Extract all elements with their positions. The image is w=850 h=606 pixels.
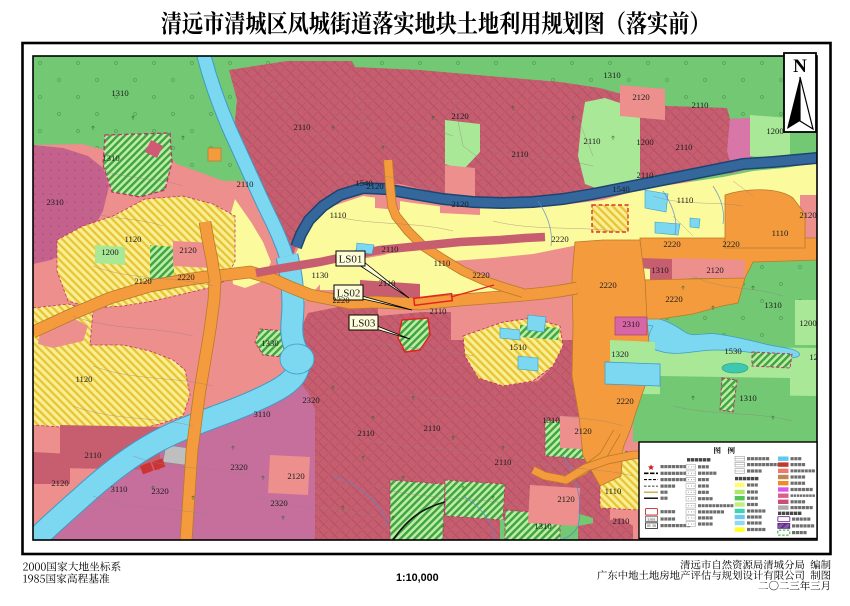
svg-text:2120: 2120	[134, 276, 152, 286]
svg-text:2120: 2120	[451, 199, 469, 209]
svg-text:2110: 2110	[583, 136, 601, 146]
svg-text:2110: 2110	[293, 122, 311, 132]
svg-text:1120: 1120	[124, 234, 142, 244]
svg-text:1530: 1530	[724, 346, 742, 356]
svg-text:2320: 2320	[270, 498, 288, 508]
svg-text:1510: 1510	[509, 342, 527, 352]
svg-text:2110: 2110	[511, 149, 529, 159]
svg-text:2220: 2220	[663, 239, 681, 249]
svg-text:2110: 2110	[357, 428, 375, 438]
svg-text:2120: 2120	[451, 111, 469, 121]
svg-text:2110: 2110	[378, 278, 396, 288]
svg-text:1200: 1200	[809, 352, 827, 362]
svg-text:2310: 2310	[622, 319, 640, 329]
svg-text:2110: 2110	[675, 142, 693, 152]
svg-text:2120: 2120	[287, 471, 305, 481]
svg-text:1120: 1120	[75, 374, 93, 384]
svg-text:2110: 2110	[494, 457, 512, 467]
svg-text:2120: 2120	[706, 265, 724, 275]
svg-text:2110: 2110	[236, 179, 254, 189]
svg-text:1310: 1310	[603, 70, 621, 80]
svg-text:1110: 1110	[772, 228, 789, 238]
svg-text:1110: 1110	[330, 210, 347, 220]
svg-text:1310: 1310	[542, 415, 560, 425]
svg-text:1310: 1310	[534, 521, 552, 531]
svg-text:2120: 2120	[366, 181, 384, 191]
svg-text:2220: 2220	[551, 234, 569, 244]
svg-text:2110: 2110	[84, 450, 102, 460]
svg-text:2220: 2220	[722, 239, 740, 249]
svg-text:1310: 1310	[739, 393, 757, 403]
svg-text:2220: 2220	[472, 270, 490, 280]
svg-text:1540: 1540	[612, 184, 630, 194]
svg-text:1310: 1310	[102, 153, 120, 163]
svg-text:2320: 2320	[230, 462, 248, 472]
svg-text:LS03: LS03	[352, 318, 376, 330]
svg-text:2110: 2110	[691, 100, 709, 110]
svg-text:1200: 1200	[799, 318, 817, 328]
svg-text:LS01: LS01	[339, 254, 363, 266]
svg-text:2120: 2120	[179, 245, 197, 255]
svg-text:2220: 2220	[332, 295, 350, 305]
svg-text:2110: 2110	[636, 170, 654, 180]
svg-text:2310: 2310	[46, 197, 64, 207]
svg-text:2220: 2220	[616, 396, 634, 406]
svg-text:1200: 1200	[636, 137, 654, 147]
svg-text:1310: 1310	[651, 265, 669, 275]
svg-text:1110: 1110	[677, 195, 694, 205]
svg-text:2120: 2120	[51, 478, 69, 488]
svg-text:LS01: LS01	[648, 517, 656, 521]
svg-text:2120: 2120	[557, 494, 575, 504]
svg-text:2320: 2320	[151, 486, 169, 496]
svg-text:1110: 1110	[434, 258, 451, 268]
svg-text:2110: 2110	[381, 244, 399, 254]
svg-text:2110: 2110	[612, 516, 630, 526]
svg-text:1200: 1200	[101, 247, 119, 257]
svg-text:2220: 2220	[177, 272, 195, 282]
svg-text:1130: 1130	[311, 270, 329, 280]
svg-text:3110: 3110	[110, 484, 128, 494]
svg-text:2120: 2120	[799, 210, 817, 220]
svg-text:2120: 2120	[574, 426, 592, 436]
svg-text:1310: 1310	[764, 300, 782, 310]
svg-text:2110: 2110	[429, 306, 447, 316]
svg-text:2320: 2320	[302, 395, 320, 405]
svg-text:1310: 1310	[111, 88, 129, 98]
svg-text:2220: 2220	[599, 280, 617, 290]
svg-text:1320: 1320	[611, 349, 629, 359]
svg-text:1330: 1330	[261, 338, 279, 348]
svg-text:3110: 3110	[253, 409, 271, 419]
svg-text:2120: 2120	[632, 92, 650, 102]
svg-text:1200: 1200	[766, 126, 784, 136]
svg-text:2220: 2220	[665, 294, 683, 304]
svg-text:2110: 2110	[423, 423, 441, 433]
svg-text:N: N	[793, 56, 807, 77]
svg-text:1110: 1110	[605, 486, 622, 496]
svg-text:1:10,000: 1:10,000	[396, 572, 439, 584]
